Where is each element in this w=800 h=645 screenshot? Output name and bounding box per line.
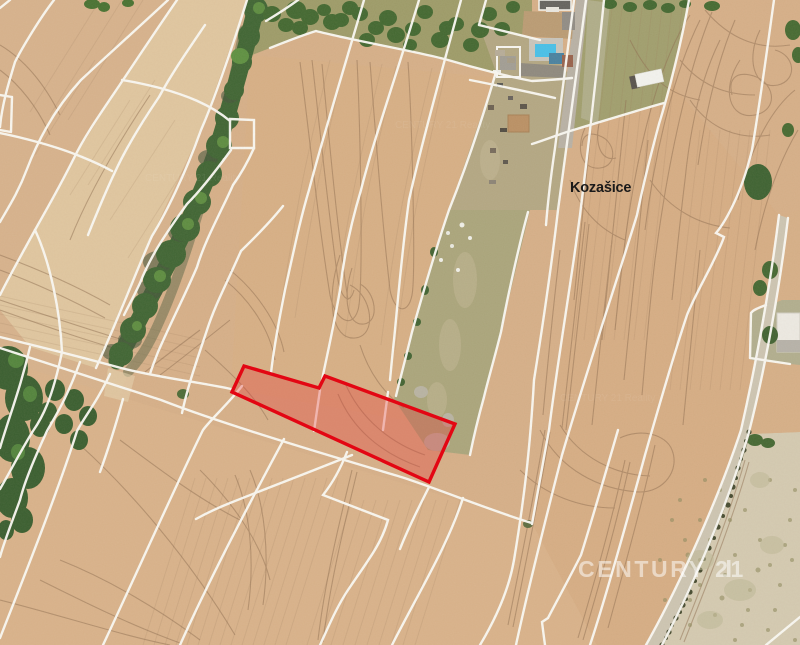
svg-text:CENTURY 21 Reality: CENTURY 21 Reality bbox=[560, 393, 655, 404]
svg-text:Kozašice: Kozašice bbox=[570, 180, 631, 196]
svg-text:CENTURY 21: CENTURY 21 bbox=[578, 556, 746, 582]
svg-text:CENTURY 21 Reality: CENTURY 21 Reality bbox=[145, 173, 240, 184]
svg-text:CENTURY 21 Reality: CENTURY 21 Reality bbox=[395, 120, 490, 131]
